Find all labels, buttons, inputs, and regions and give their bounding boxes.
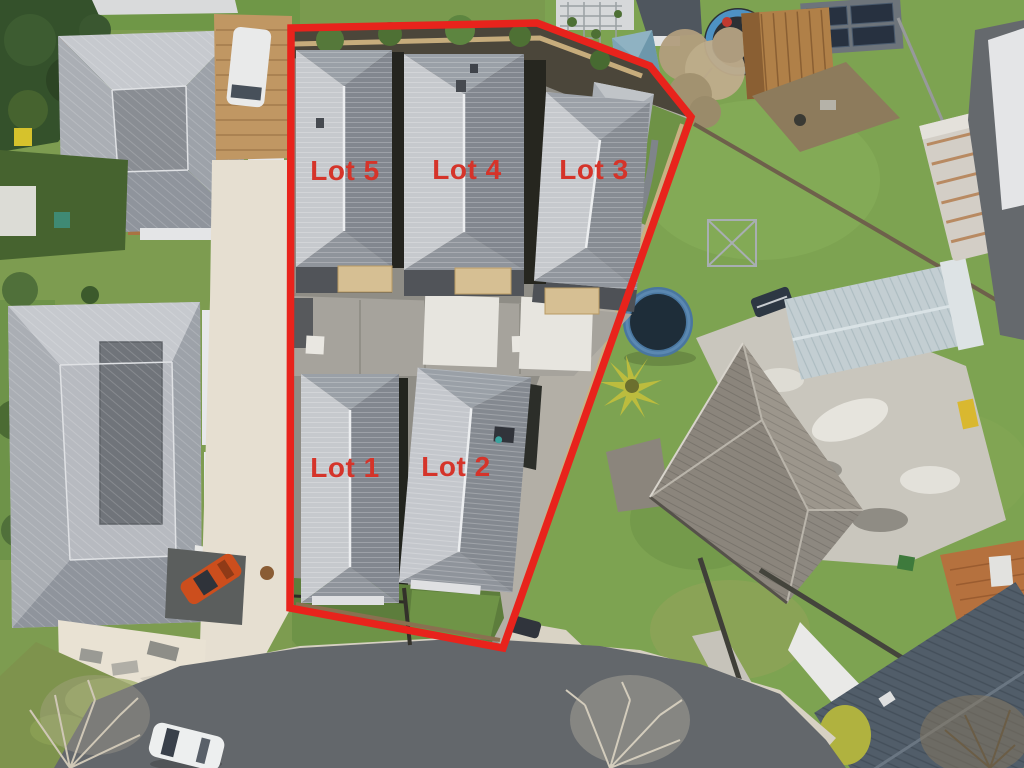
- dirt-junk-2: [820, 100, 836, 110]
- green-bin: [897, 555, 915, 572]
- teal-object: [54, 212, 70, 228]
- pool-water: [630, 294, 686, 350]
- porch-lot4: [455, 268, 511, 294]
- lot-1-label: Lot 1: [310, 452, 379, 483]
- yellow-object: [14, 128, 32, 146]
- roof-texture: [534, 92, 650, 290]
- lot-3-house: [534, 82, 654, 290]
- lot-3-label: Lot 3: [559, 154, 628, 185]
- porch-lot3: [545, 288, 599, 314]
- roof-vent: [316, 118, 324, 128]
- white-deck-table: [989, 555, 1014, 587]
- roof-vent-2: [470, 64, 478, 73]
- parking-pad-1: [423, 295, 499, 368]
- white-van: [226, 26, 272, 108]
- red-toy: [722, 17, 732, 27]
- white-garden-sign: [0, 186, 36, 236]
- manhole-cover: [260, 566, 274, 580]
- lot-4-label: Lot 4: [432, 154, 501, 185]
- aerial-photo: Lot 5 Lot 4 Lot 3 Lot 1 Lot 2: [0, 0, 1024, 768]
- lot-2-house: [398, 367, 531, 597]
- left-concrete-driveway: [200, 160, 292, 714]
- lot-5-label: Lot 5: [310, 155, 379, 186]
- white-pad-small-1: [306, 336, 325, 355]
- south-fascia: [312, 596, 384, 605]
- top-left-building-edge: [90, 0, 238, 15]
- gap-lot5-lot4: [392, 52, 404, 268]
- dirt-junk: [794, 114, 806, 126]
- left-neighborhood: [0, 0, 300, 768]
- lot-1-house: [301, 374, 399, 605]
- lot-2-label: Lot 2: [421, 451, 490, 482]
- porch-lot5: [338, 266, 392, 292]
- roof-vent-1: [456, 80, 466, 92]
